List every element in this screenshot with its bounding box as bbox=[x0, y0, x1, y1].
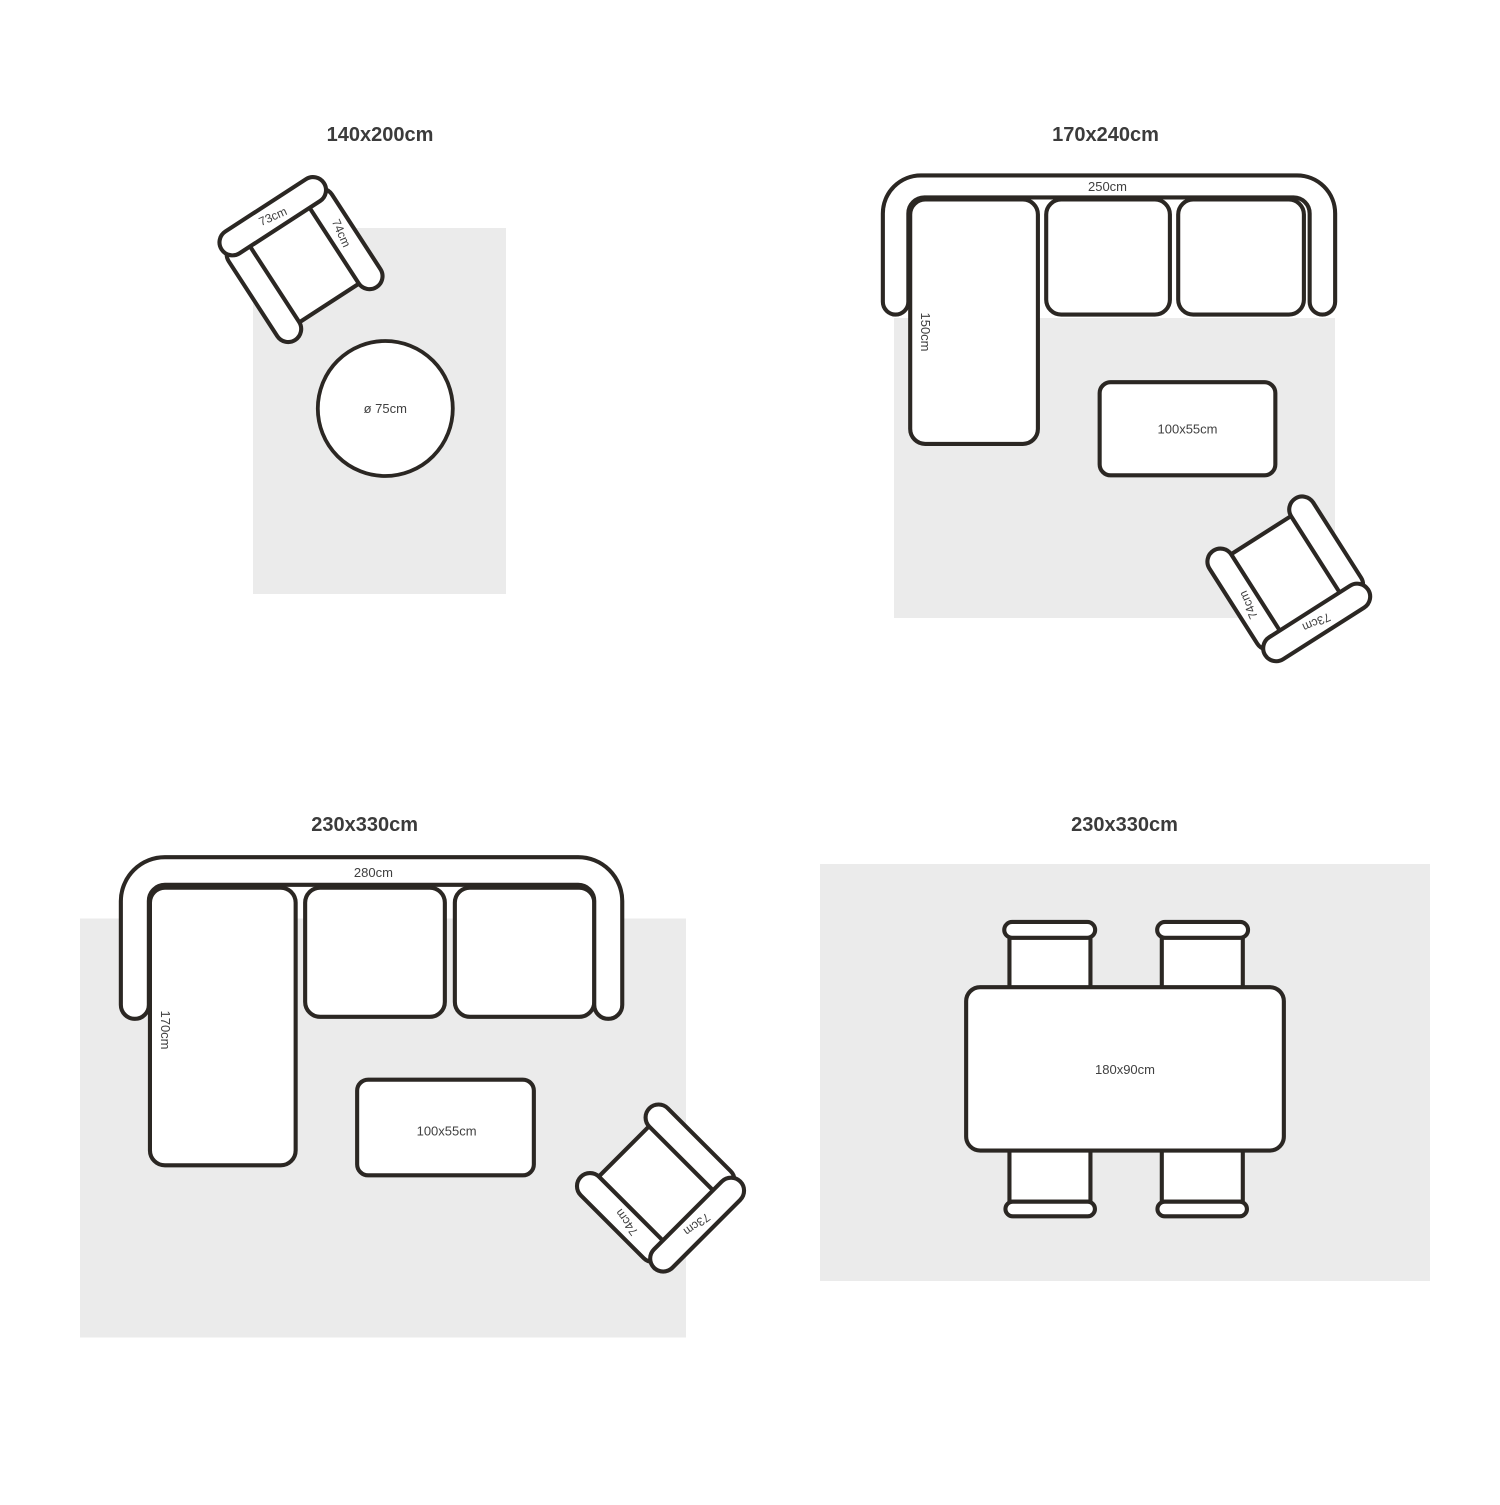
svg-text:150cm: 150cm bbox=[918, 312, 933, 351]
svg-text:170x240cm: 170x240cm bbox=[1052, 124, 1159, 146]
svg-text:230x330cm: 230x330cm bbox=[311, 814, 418, 836]
svg-text:140x200cm: 140x200cm bbox=[327, 124, 434, 146]
svg-text:170cm: 170cm bbox=[158, 1010, 173, 1049]
svg-text:230x330cm: 230x330cm bbox=[1071, 814, 1178, 836]
svg-text:180x90cm: 180x90cm bbox=[1095, 1062, 1155, 1077]
svg-text:280cm: 280cm bbox=[354, 865, 393, 880]
svg-text:250cm: 250cm bbox=[1088, 179, 1127, 194]
svg-text:100x55cm: 100x55cm bbox=[1158, 421, 1218, 436]
svg-text:100x55cm: 100x55cm bbox=[417, 1123, 477, 1138]
svg-text:ø 75cm: ø 75cm bbox=[364, 401, 407, 416]
